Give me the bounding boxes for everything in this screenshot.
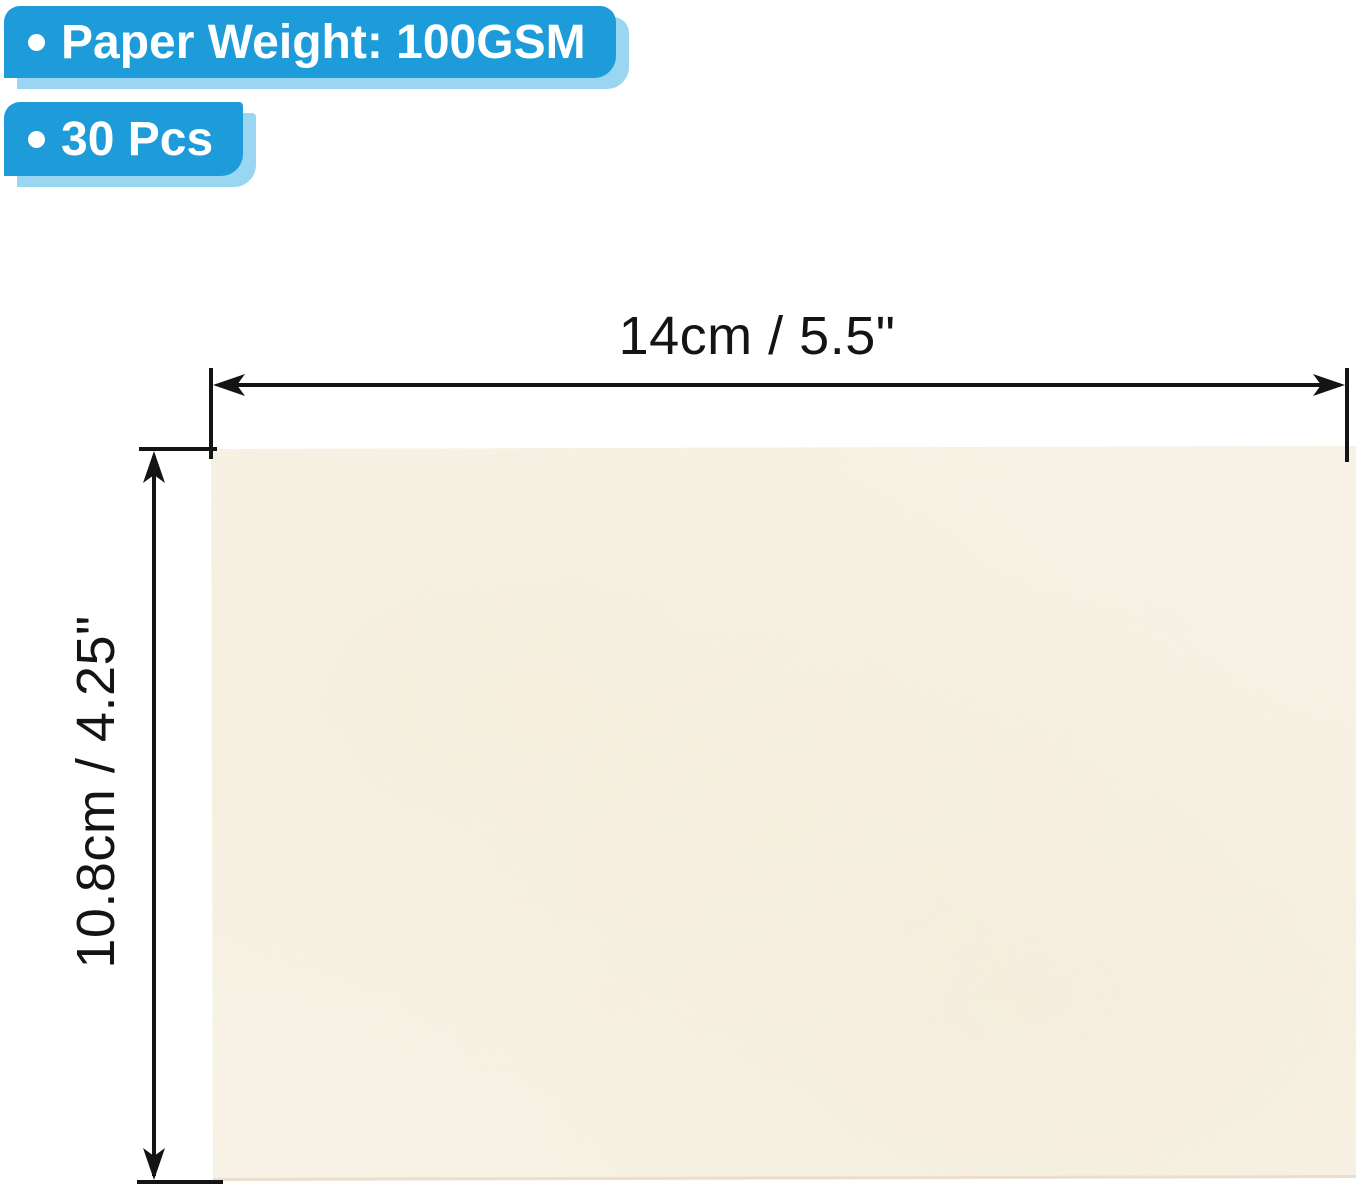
badge-paper-weight: Paper Weight: 100GSM: [4, 6, 616, 78]
bullet-dot-icon: [28, 34, 45, 51]
product-dimension-diagram: Paper Weight: 100GSM 30 Pcs 14cm / 5.5" …: [0, 0, 1356, 1185]
width-dimension-label: 14cm / 5.5": [619, 305, 896, 367]
height-arrow-icon: [137, 449, 223, 1182]
badge-piece-count-label: 30 Pcs: [61, 112, 213, 167]
badge-paper-weight-label: Paper Weight: 100GSM: [61, 15, 586, 70]
badge-piece-count: 30 Pcs: [4, 102, 243, 176]
bullet-dot-icon: [28, 131, 45, 148]
height-dimension-label: 10.8cm / 4.25": [65, 615, 127, 968]
paper-sheet-swatch: [211, 446, 1356, 1181]
